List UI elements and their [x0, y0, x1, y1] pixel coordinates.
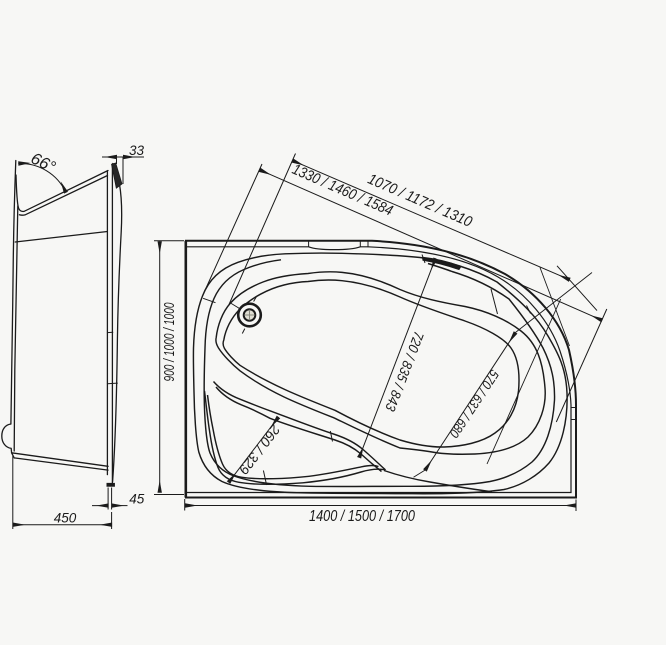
svg-text:260 / 329: 260 / 329: [236, 421, 285, 478]
svg-text:720 / 835 / 843: 720 / 835 / 843: [382, 329, 427, 413]
svg-text:45: 45: [129, 492, 145, 507]
svg-text:33: 33: [129, 143, 145, 158]
svg-text:1400 / 1500 / 1700: 1400 / 1500 / 1700: [309, 508, 415, 525]
svg-text:450: 450: [54, 511, 77, 526]
svg-text:900 / 1000 / 1000: 900 / 1000 / 1000: [162, 303, 178, 382]
svg-text:66°: 66°: [28, 149, 59, 176]
svg-text:570 / 637 / 680: 570 / 637 / 680: [446, 367, 502, 441]
